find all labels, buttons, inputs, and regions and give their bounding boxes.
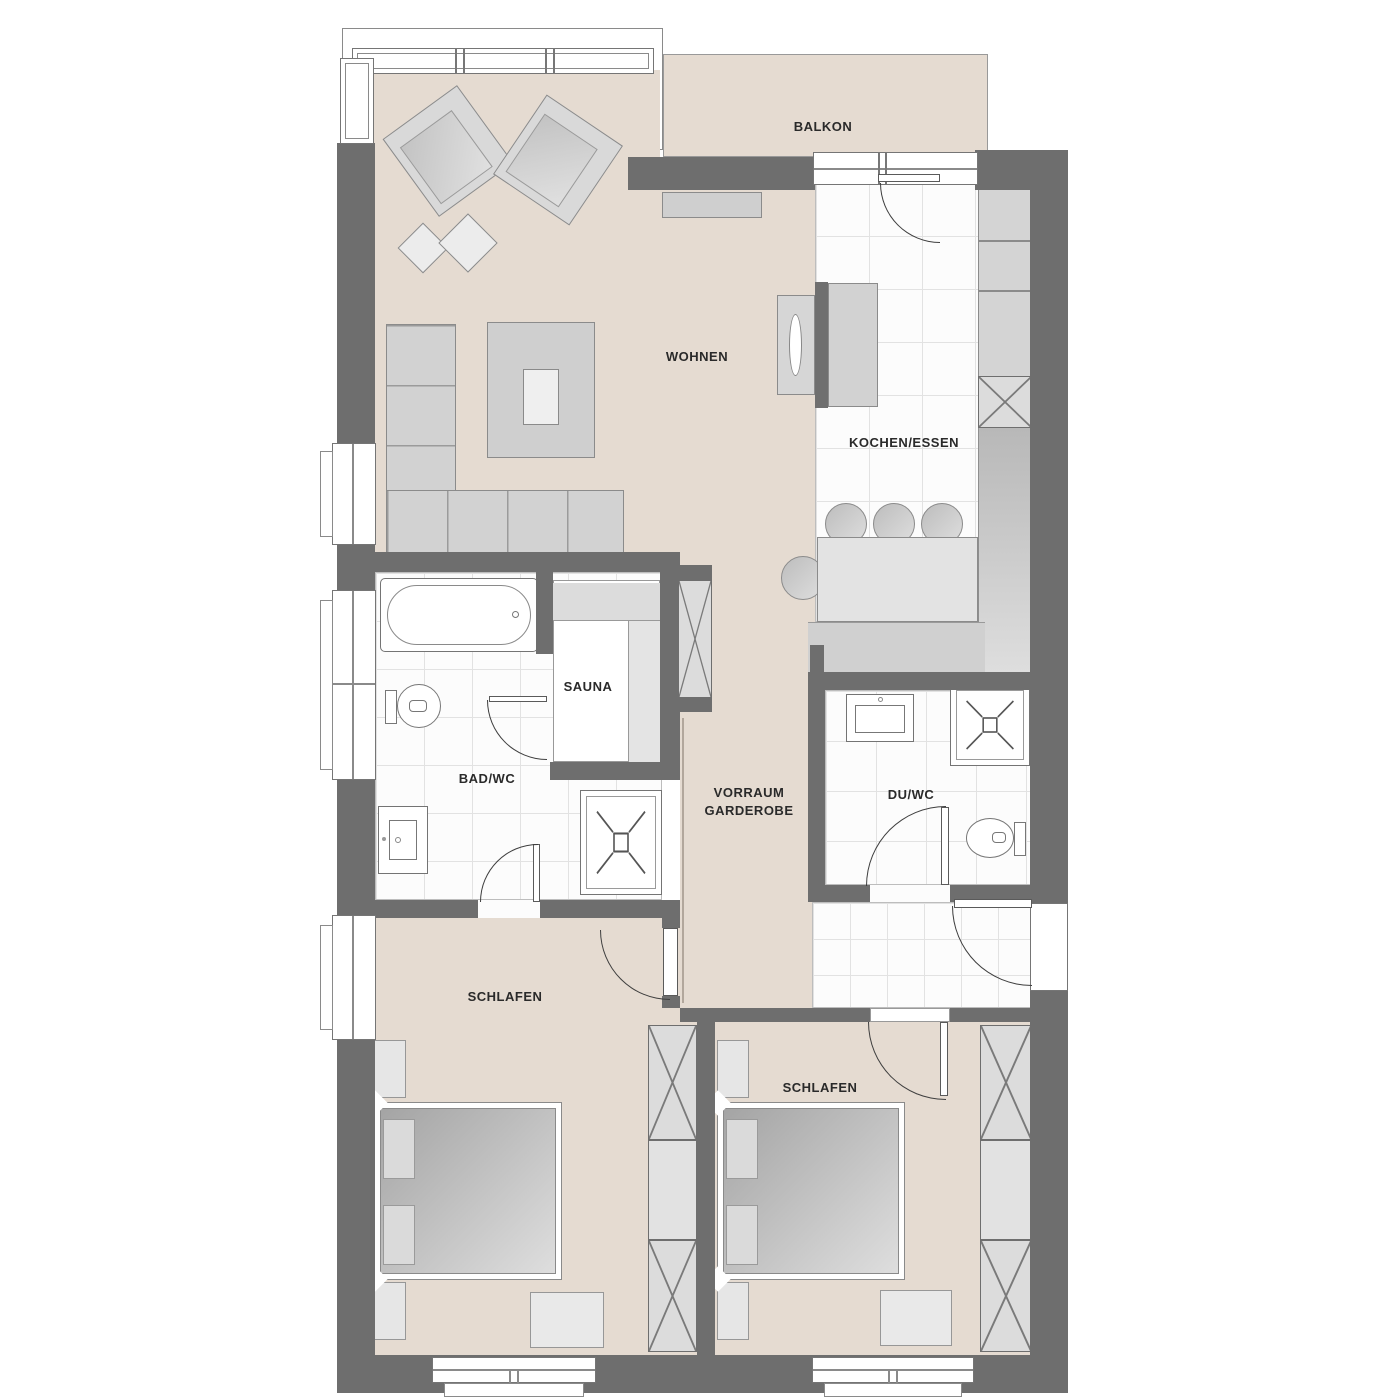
room-label-sauna: SAUNA xyxy=(548,678,628,696)
window-sill xyxy=(824,1383,962,1397)
window-mullion xyxy=(455,48,457,74)
bathtub-icon xyxy=(380,578,538,652)
wall xyxy=(671,698,712,712)
bath-door-opening xyxy=(478,900,540,918)
side-table xyxy=(530,1292,604,1348)
side-table xyxy=(880,1290,952,1346)
window xyxy=(812,1357,974,1383)
wardrobe xyxy=(648,1025,697,1140)
wall xyxy=(808,885,870,902)
wall xyxy=(536,572,553,654)
kitchen-counter xyxy=(978,428,1032,674)
nightstand xyxy=(374,1040,406,1098)
window-sill xyxy=(320,925,333,1030)
vorraum-label-line2: GARDEROBE xyxy=(679,802,819,820)
floor-plan: BALKON WOHNEN KOCHEN/ESSEN SAUNA BAD/WC … xyxy=(0,0,1400,1400)
nightstand xyxy=(717,1282,749,1340)
corner-window xyxy=(352,48,654,74)
coffee-table xyxy=(487,322,595,458)
wall xyxy=(1030,185,1068,1355)
wall xyxy=(810,645,824,673)
room-label-vorraum: VORRAUM GARDEROBE xyxy=(679,784,819,820)
room-label-kochen-essen: KOCHEN/ESSEN xyxy=(824,434,984,452)
wall xyxy=(660,565,712,580)
sink-icon xyxy=(846,694,914,742)
window-mullion xyxy=(463,48,465,74)
tv-lowboard xyxy=(777,295,815,395)
nightstand xyxy=(374,1282,406,1340)
sauna-bench xyxy=(553,583,660,621)
wall xyxy=(975,150,1068,190)
wall xyxy=(808,672,1032,690)
window-sill xyxy=(320,600,333,770)
room-label-schlafen-2: SCHLAFEN xyxy=(750,1079,890,1097)
room-label-balkon: BALKON xyxy=(763,118,883,136)
window-mullion xyxy=(545,48,547,74)
shower-icon xyxy=(580,790,662,895)
window xyxy=(332,590,376,780)
wall xyxy=(660,565,680,780)
room-label-schlafen-1: SCHLAFEN xyxy=(435,988,575,1006)
window-sill xyxy=(444,1383,584,1397)
sideboard xyxy=(662,192,762,218)
cabinet-divider xyxy=(978,290,1032,292)
toilet-icon xyxy=(385,684,443,730)
sink-icon xyxy=(378,806,428,874)
wall xyxy=(950,1008,1032,1022)
room-label-du-wc: DU/WC xyxy=(861,786,961,804)
corner-window-side xyxy=(340,58,374,144)
sauna-bench xyxy=(628,621,660,762)
wall xyxy=(662,918,680,928)
window xyxy=(432,1357,596,1383)
speaker-icon xyxy=(789,314,802,376)
wardrobe xyxy=(980,1240,1032,1352)
wall xyxy=(372,552,680,572)
tall-unit xyxy=(978,376,1032,428)
wardrobe xyxy=(648,1140,697,1240)
room-label-wohnen: WOHNEN xyxy=(637,348,757,366)
bedroom2-door-opening xyxy=(870,1008,950,1022)
tv-screen xyxy=(815,282,828,408)
toilet-icon xyxy=(964,818,1026,860)
shower-icon xyxy=(950,684,1030,766)
window-sill xyxy=(320,451,333,537)
duwc-door-opening xyxy=(870,885,950,902)
window xyxy=(332,443,376,545)
dining-table xyxy=(817,537,978,622)
wall xyxy=(550,762,680,780)
wall xyxy=(680,1008,870,1022)
nightstand xyxy=(717,1040,749,1098)
bed xyxy=(374,1102,562,1280)
entry-door xyxy=(1030,903,1068,991)
window xyxy=(332,915,376,1040)
kitchen-door-leaf xyxy=(878,174,940,182)
wardrobe xyxy=(980,1140,1032,1240)
wardrobe-rail xyxy=(682,718,684,1003)
kitchen-island xyxy=(808,622,985,672)
wardrobe xyxy=(648,1240,697,1352)
balcony-floor xyxy=(663,54,988,157)
wall xyxy=(628,157,815,190)
room-label-bad-wc: BAD/WC xyxy=(427,770,547,788)
cabinet-divider xyxy=(978,240,1032,242)
window-mullion xyxy=(553,48,555,74)
wall xyxy=(540,900,680,918)
hall-wardrobe xyxy=(678,580,712,698)
vorraum-label-line1: VORRAUM xyxy=(679,784,819,802)
tv-cabinet xyxy=(828,283,878,407)
wall xyxy=(697,1022,715,1355)
bed xyxy=(717,1102,905,1280)
wardrobe xyxy=(980,1025,1032,1140)
